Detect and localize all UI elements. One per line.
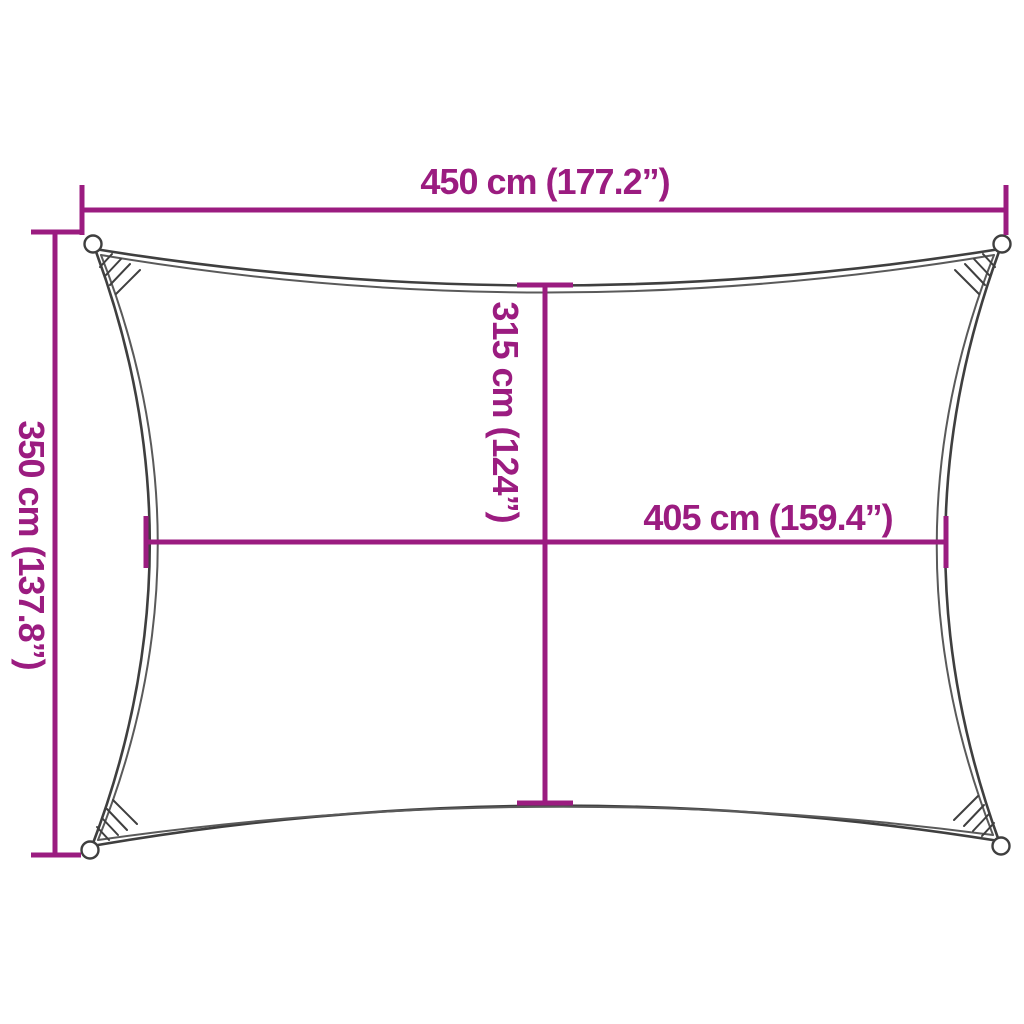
sail-edge-bottom-outer bbox=[92, 806, 999, 846]
product-dimension-diagram: 450 cm (177.2”) 350 cm (137.8”) 315 cm (… bbox=[0, 0, 1024, 1024]
dimension-label-height: 350 cm (137.8”) bbox=[13, 420, 49, 669]
dimension-label-width: 450 cm (177.2”) bbox=[420, 164, 669, 200]
sail-edge-right-outer bbox=[945, 249, 1000, 841]
sail-edge-left-outer bbox=[92, 249, 150, 846]
dimension-label-inner-height: 315 cm (124”) bbox=[487, 301, 523, 522]
dimension-label-inner-width: 405 cm (159.4”) bbox=[643, 500, 892, 536]
sail-edge-top-outer bbox=[95, 249, 1000, 286]
